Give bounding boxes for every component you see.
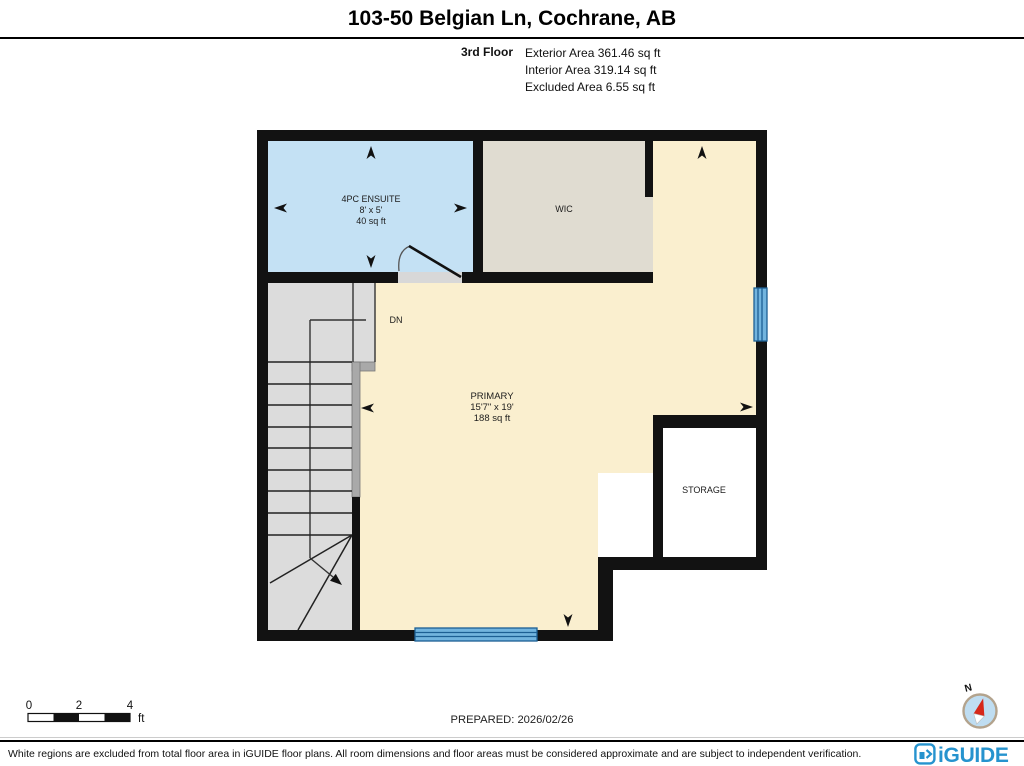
page-title: 103-50 Belgian Ln, Cochrane, AB [0,0,1024,31]
scale-bar: 0 2 4 ft [26,700,145,725]
floor-label: 3rd Floor [461,45,513,59]
prepared-date: PREPARED: 2026/02/26 [451,714,574,726]
floorplan-page: 4PC ENSUITE 8' x 5' 40 sq ft WIC DN PRIM… [0,0,1024,766]
scale-tick-0: 0 [26,700,32,712]
iguide-logo-svg: iGUIDE [914,742,1020,766]
bottom-window [415,628,537,641]
excluded-area: Excluded Area 6.55 sq ft [525,79,660,96]
floor-plan-canvas: 4PC ENSUITE 8' x 5' 40 sq ft WIC DN PRIM… [0,0,1024,766]
interior-area: Interior Area 319.14 sq ft [525,62,660,79]
footer-top-line [0,737,1024,738]
compass: N [964,682,997,727]
ensuite-label: 4PC ENSUITE [341,194,400,204]
ensuite-area: 40 sq ft [356,216,386,226]
primary-dims: 15'7" x 19' [470,402,514,413]
area-summary: Exterior Area 361.46 sq ft Interior Area… [525,45,660,96]
wic-label: WIC [555,204,573,214]
iguide-logo: iGUIDE [914,742,1020,766]
scale-tick-4: 4 [127,700,134,712]
header-divider [0,37,1024,39]
header: 103-50 Belgian Ln, Cochrane, AB 3rd Floo… [0,0,1024,31]
right-window [754,288,767,341]
compass-north-label: N [964,682,974,694]
stairs-dn-label: DN [390,315,403,325]
iguide-brand-text: iGUIDE [938,744,1009,766]
primary-label: PRIMARY [470,391,514,402]
excluded-area-region [598,473,653,557]
storage-label: STORAGE [682,485,726,495]
ensuite-dims: 8' x 5' [360,205,383,215]
scale-tick-2: 2 [76,700,82,712]
footer: White regions are excluded from total fl… [0,740,1024,766]
primary-area: 188 sq ft [474,413,511,424]
disclaimer-text: White regions are excluded from total fl… [0,748,914,760]
scale-unit: ft [138,713,145,725]
exterior-area: Exterior Area 361.46 sq ft [525,45,660,62]
